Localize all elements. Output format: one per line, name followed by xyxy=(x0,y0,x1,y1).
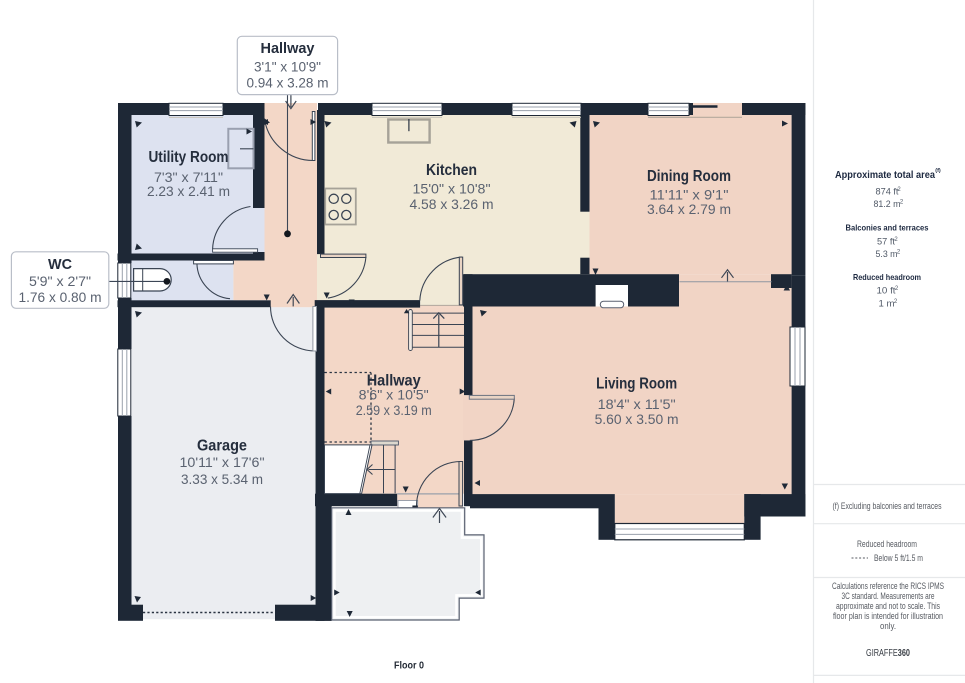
svg-text:10'11" x 17'6": 10'11" x 17'6" xyxy=(180,454,265,470)
svg-text:18'4" x 11'5": 18'4" x 11'5" xyxy=(598,396,676,412)
svg-text:Garage: Garage xyxy=(197,438,247,455)
svg-text:approximate and not to scale.: approximate and not to scale. This xyxy=(836,601,940,611)
svg-text:floor plan is intended for ill: floor plan is intended for illustration xyxy=(833,611,943,621)
svg-text:2.59 x 3.19 m: 2.59 x 3.19 m xyxy=(356,402,432,418)
svg-text:Below 5 ft/1.5 m: Below 5 ft/1.5 m xyxy=(874,553,923,563)
svg-text:3C standard. Measurements are: 3C standard. Measurements are xyxy=(842,591,935,601)
svg-text:WC: WC xyxy=(48,256,72,273)
svg-text:Hallway: Hallway xyxy=(261,40,316,57)
svg-text:Kitchen: Kitchen xyxy=(426,162,477,179)
svg-text:8'6" x 10'5": 8'6" x 10'5" xyxy=(359,387,429,403)
svg-text:Balconies and terraces: Balconies and terraces xyxy=(846,223,929,233)
svg-text:GIRAFFE360: GIRAFFE360 xyxy=(866,648,910,659)
svg-text:1.76 x 0.80 m: 1.76 x 0.80 m xyxy=(19,290,102,305)
svg-text:Calculations reference the RIC: Calculations reference the RICS IPMS xyxy=(832,581,944,591)
svg-text:5.3 m: 5.3 m xyxy=(876,249,898,260)
svg-text:3'1" x 10'9": 3'1" x 10'9" xyxy=(254,60,321,75)
svg-text:Dining Room: Dining Room xyxy=(647,168,731,185)
svg-text:(f): (f) xyxy=(935,168,941,174)
svg-text:(f) Excluding balconies and te: (f) Excluding balconies and terraces xyxy=(833,501,942,511)
svg-text:Reduced headroom: Reduced headroom xyxy=(853,272,921,282)
svg-text:only.: only. xyxy=(880,621,896,631)
svg-text:1 m: 1 m xyxy=(879,299,895,310)
svg-text:5.60 x 3.50 m: 5.60 x 3.50 m xyxy=(595,411,679,427)
svg-text:874 ft: 874 ft xyxy=(876,187,899,198)
svg-text:15'0" x 10'8": 15'0" x 10'8" xyxy=(413,181,491,197)
svg-text:Approximate total area: Approximate total area xyxy=(835,170,935,181)
svg-text:57 ft: 57 ft xyxy=(877,237,895,248)
svg-text:3.33 x 5.34 m: 3.33 x 5.34 m xyxy=(181,471,263,487)
svg-text:5'9" x 2'7": 5'9" x 2'7" xyxy=(29,274,91,289)
svg-text:Living Room: Living Room xyxy=(596,376,677,393)
svg-text:Reduced headroom: Reduced headroom xyxy=(857,539,917,549)
svg-text:4.58 x 3.26 m: 4.58 x 3.26 m xyxy=(410,196,494,212)
svg-text:0.94 x 3.28 m: 0.94 x 3.28 m xyxy=(247,76,329,91)
svg-text:Floor 0: Floor 0 xyxy=(394,661,424,672)
svg-text:10 ft: 10 ft xyxy=(877,286,896,297)
svg-text:2.23 x 2.41 m: 2.23 x 2.41 m xyxy=(147,183,230,199)
svg-text:Utility Room: Utility Room xyxy=(149,149,229,166)
svg-text:3.64 x 2.79 m: 3.64 x 2.79 m xyxy=(647,201,731,217)
svg-text:81.2 m: 81.2 m xyxy=(874,199,901,210)
